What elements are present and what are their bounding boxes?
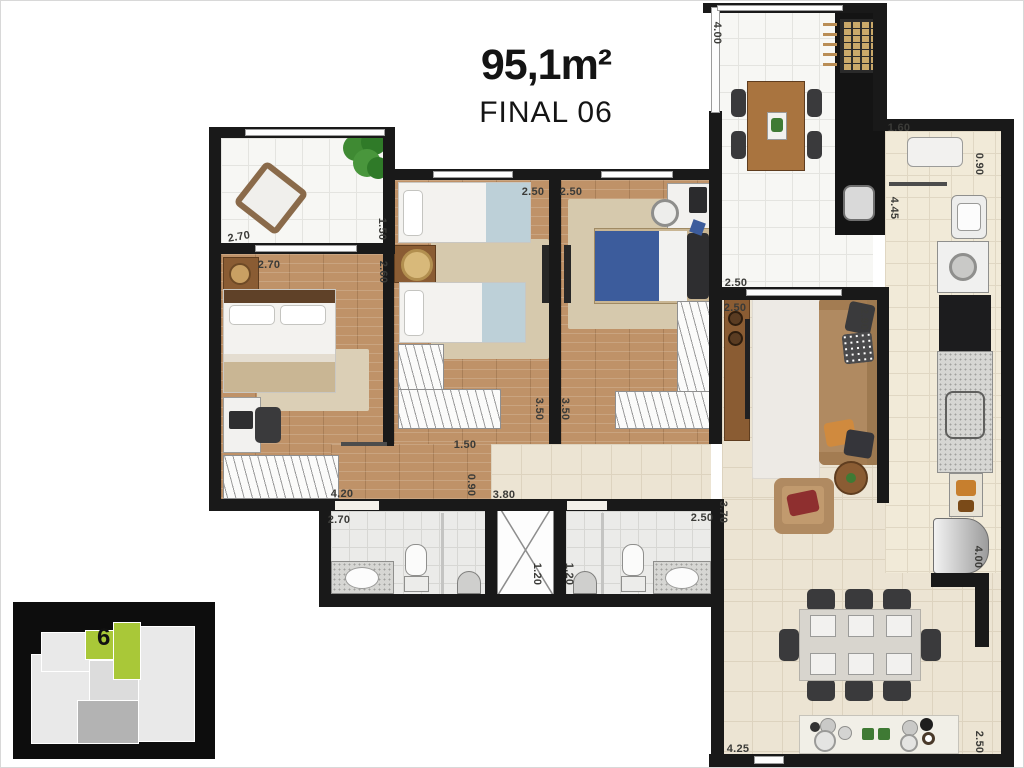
wall-bedroom3-right [709, 111, 722, 444]
floor-plan: 95,1m² FINAL 06 [0, 0, 1024, 768]
bathroom1-toilet-icon [404, 544, 429, 593]
wall-bedroom23-divider [549, 180, 561, 444]
shaft-x-icon [498, 505, 553, 595]
terrace-left-railing [711, 7, 720, 113]
bathroom2-shower-glass [601, 513, 604, 594]
speaker-icon [728, 311, 743, 326]
fridge [933, 518, 989, 574]
sideboard [799, 715, 959, 754]
bathroom2-sink-icon [665, 567, 699, 589]
terrace-chair-3 [807, 89, 822, 117]
stove [949, 473, 983, 517]
tv-icon [745, 319, 750, 419]
bedroom2-door [542, 245, 549, 303]
lamp-icon [229, 263, 251, 285]
dining-chair-4 [807, 679, 835, 701]
master-wardrobe [223, 455, 339, 499]
bedroom3-door [564, 245, 571, 303]
master-door-line [341, 442, 387, 446]
counter-sink-icon [843, 185, 875, 221]
terrace-top-railing [717, 5, 843, 11]
skewers-icon [823, 23, 837, 73]
keyplan-block-right [135, 626, 195, 742]
dining-chair-3 [883, 589, 911, 611]
wall-dining-left [711, 499, 724, 759]
wall-laundry-top [873, 119, 1014, 131]
kitchen-sink-icon [945, 391, 985, 439]
bedroom2-wardrobe-bottom [398, 389, 501, 429]
bedroom2-bed-a [398, 182, 531, 243]
bedroom3-bed [594, 228, 714, 304]
sofa [819, 297, 881, 465]
keyplan-core [77, 700, 139, 744]
hall-tile-floor [491, 444, 711, 499]
wall-left-outer [209, 127, 221, 511]
speaker2-icon [728, 331, 743, 346]
keyplan-unit6-right [113, 622, 141, 680]
wall-bath-top [319, 499, 721, 511]
apartment-area: 95,1m² [421, 41, 671, 90]
wall-bath-shaft-left [485, 504, 497, 596]
bathroom2-showerhead-icon [573, 571, 597, 594]
bathroom1-showerhead-icon [457, 571, 481, 594]
bedroom3-desk-chair [651, 199, 679, 227]
pillow-dark2-icon [843, 429, 875, 459]
dining-window [754, 756, 784, 764]
bathroom1-sink-icon [345, 567, 379, 589]
terrace-chair-4 [807, 131, 822, 159]
wall-terrace-right [873, 3, 887, 129]
pillow-pattern-icon [842, 332, 875, 365]
living-rug [752, 291, 820, 479]
dining-chair-5 [845, 679, 873, 701]
wall-master-bottom [209, 499, 331, 511]
wall-bath-bottom [319, 594, 721, 607]
bedroom2-window [433, 171, 513, 178]
terrace-table [747, 81, 805, 171]
master-desk-chair [255, 407, 281, 443]
unit-label: FINAL 06 [421, 96, 671, 130]
dining-chair-2 [845, 589, 873, 611]
shaft-box [497, 504, 554, 596]
bathroom2-door-gap [567, 501, 607, 510]
hall-wood-floor [331, 444, 491, 499]
bathroom1-shower-glass [441, 513, 444, 594]
dining-chair-6 [883, 679, 911, 701]
dining-chair-8 [921, 629, 941, 661]
wall-bath-shaft-right [554, 504, 566, 596]
living-terrace-door [746, 289, 842, 296]
terrace-chair-2 [731, 131, 746, 159]
kitchen-counter-dark [939, 295, 991, 351]
master-balcony-door [255, 245, 357, 252]
washing-machine [937, 241, 989, 293]
wall-living-right [877, 287, 889, 503]
straw-rug-icon [401, 249, 433, 281]
laundry-sink [951, 195, 987, 239]
dining-chair-1 [807, 589, 835, 611]
laundry-cabinet [907, 137, 963, 167]
bedroom3-wardrobe-bottom [615, 391, 711, 429]
terrace-chair-1 [731, 89, 746, 117]
laundry-sliding-door [889, 182, 947, 186]
side-table [834, 461, 868, 495]
plan-header: 95,1m² FINAL 06 [421, 41, 671, 130]
bedroom2-bed-b [399, 282, 526, 343]
bathroom1-door-gap [335, 501, 379, 510]
keyplan-unit-number: 6 [97, 624, 110, 652]
armchair [774, 478, 834, 534]
laptop2-icon [689, 187, 707, 213]
bedroom3-window [601, 171, 673, 178]
dining-table [799, 609, 921, 681]
wall-bath-left [319, 499, 331, 606]
wall-kitchen-step-v [975, 573, 989, 647]
master-bed [223, 289, 336, 393]
wall-master-bedroom2-divider [383, 180, 394, 446]
wall-right-outer [1001, 119, 1014, 767]
laptop-icon [229, 411, 253, 429]
bathroom2-toilet-icon [621, 544, 646, 593]
dining-chair-7 [779, 629, 799, 661]
balcony-railing [245, 129, 385, 136]
keyplan-inset: 6 [13, 602, 215, 759]
